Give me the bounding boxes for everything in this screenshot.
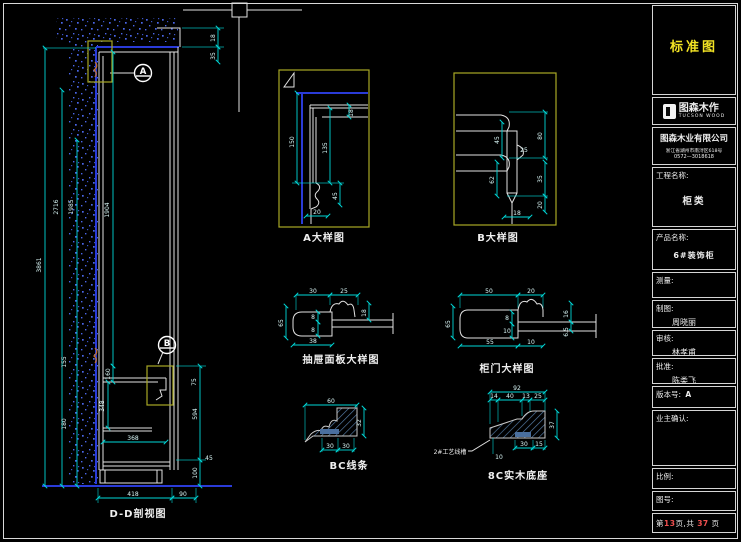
dim-label: 20 bbox=[313, 209, 321, 216]
dim-label: 55 bbox=[486, 339, 494, 346]
measure-label: 测量: bbox=[656, 275, 732, 286]
dim-label: 18 bbox=[210, 34, 217, 42]
product-label: 产品名称: bbox=[656, 232, 732, 243]
dim-label: 15 bbox=[535, 441, 543, 448]
dim-label: 3861 bbox=[36, 257, 43, 272]
base-8c-view: 2#工艺线槽 92 14 40 13 25 37 30 15 10 8C实木底座 bbox=[434, 385, 557, 482]
dim-label: 92 bbox=[513, 385, 521, 392]
review-label: 审核: bbox=[656, 333, 732, 344]
scale-cell: 比例: bbox=[652, 468, 736, 489]
page-total: 37 bbox=[697, 519, 708, 528]
callout-a-label: A bbox=[140, 67, 147, 77]
dim-label: 368 bbox=[127, 435, 139, 442]
dim-label: 45 bbox=[494, 136, 501, 144]
cad-drawing-canvas: A B bbox=[0, 0, 741, 542]
dim-label: 20 bbox=[527, 288, 535, 295]
page-prefix: 第 bbox=[656, 519, 664, 528]
dim-label: 65 bbox=[278, 319, 285, 327]
logo-cell: 图森木作 TUCSON WOOD bbox=[652, 97, 736, 125]
dim-label: 25 bbox=[534, 393, 542, 400]
dim-label: 2716 bbox=[53, 199, 60, 214]
dim-label: 30 bbox=[520, 441, 528, 448]
drawing-sheet: A B bbox=[0, 0, 741, 542]
dim-label: 16 bbox=[563, 310, 570, 318]
leader-label: 2#工艺线槽 bbox=[434, 448, 467, 456]
dim-label: 30 bbox=[342, 443, 350, 450]
dim-label: 60 bbox=[327, 398, 335, 405]
dim-label: 32 bbox=[356, 419, 363, 427]
page-suffix: 页 bbox=[712, 519, 720, 528]
concrete-speckle-top bbox=[56, 18, 178, 42]
dim-label: 6.5 bbox=[563, 327, 570, 337]
dim-label: 25 bbox=[340, 288, 348, 295]
dim-label: 75 bbox=[191, 378, 198, 386]
dim-label: 45 bbox=[332, 192, 339, 200]
dim-label: 10 bbox=[495, 454, 503, 461]
dim-label: 10 bbox=[527, 339, 535, 346]
moulding-insert-block bbox=[320, 429, 339, 434]
review-cell: 审核: 林孝甫 bbox=[652, 330, 736, 356]
dim-label: 40 bbox=[506, 393, 514, 400]
concrete-speckle-wall bbox=[68, 42, 98, 484]
dim-label: 1985 bbox=[68, 199, 75, 214]
review-value: 林孝甫 bbox=[656, 347, 732, 356]
top-grid-marker bbox=[183, 3, 302, 112]
dim-label: 30 bbox=[326, 443, 334, 450]
company-name: 图森木业有限公司 bbox=[656, 132, 732, 144]
detail-b-view: 45 80 25 62 35 20 18 B大样图 bbox=[454, 73, 556, 244]
project-cell: 工程名称: 柜类 bbox=[652, 167, 736, 227]
cabinet-door-view: 50 20 65 8 10 16 6.5 55 10 柜门大样图 bbox=[445, 288, 596, 375]
approve-cell: 批准: 陈类飞 bbox=[652, 358, 736, 384]
bc-moulding-caption: BC线条 bbox=[330, 459, 369, 472]
company-address: 浙江省湖州市南浔区618号 bbox=[658, 147, 730, 154]
detail-b-highlight-box bbox=[147, 366, 173, 405]
dim-label: 62 bbox=[489, 176, 496, 184]
project-value: 柜类 bbox=[656, 193, 732, 207]
drawing-no-cell: 图号: bbox=[652, 491, 736, 511]
product-cell: 产品名称: 6#装饰柜 bbox=[652, 229, 736, 270]
base-insert-block bbox=[515, 432, 531, 437]
bc-moulding-view: 60 32 30 30 BC线条 bbox=[305, 398, 368, 472]
drawer-panel-view: 30 25 65 8 8 18 38 抽屉面板大样图 bbox=[278, 288, 393, 366]
owner-confirm-label: 业主确认: bbox=[656, 413, 732, 424]
dim-label: 594 bbox=[192, 408, 199, 420]
title-block: 标准图 图森木作 TUCSON WOOD 图森木业有限公司 浙江省湖州市南浔区6… bbox=[652, 5, 736, 533]
dim-label: 65 bbox=[445, 320, 452, 328]
drawer-panel-caption: 抽屉面板大样图 bbox=[303, 353, 380, 366]
section-view: A B bbox=[36, 18, 232, 520]
dim-label: 150 bbox=[289, 136, 296, 148]
dim-label: 30 bbox=[309, 288, 317, 295]
draft-cell: 制图: 周晓丽 bbox=[652, 300, 736, 328]
base-8c-caption: 8C实木底座 bbox=[488, 469, 548, 482]
section-caption: D-D剖视图 bbox=[110, 507, 167, 520]
draft-label: 制图: bbox=[656, 303, 732, 314]
version-cell: 版本号: A bbox=[652, 386, 736, 408]
dim-label: 8 bbox=[311, 327, 315, 334]
scale-label: 比例: bbox=[656, 471, 732, 482]
product-value: 6#装饰柜 bbox=[656, 250, 732, 261]
dim-label: 348 bbox=[99, 400, 106, 412]
dim-label: 13 bbox=[522, 393, 530, 400]
drawing-no-label: 图号: bbox=[656, 494, 732, 505]
version-value: A bbox=[685, 390, 691, 399]
callout-b-label: B bbox=[164, 339, 170, 349]
dim-label: 14 bbox=[490, 393, 498, 400]
standard-drawing-cell: 标准图 bbox=[652, 5, 736, 95]
dim-label: 135 bbox=[322, 142, 329, 154]
company-logo-icon bbox=[663, 104, 676, 119]
company-cell: 图森木业有限公司 浙江省湖州市南浔区618号 0572—3018618 bbox=[652, 127, 736, 165]
standard-drawing-label: 标准图 bbox=[670, 40, 718, 55]
dim-label: 18 bbox=[361, 309, 368, 317]
dim-label: 100 bbox=[192, 467, 199, 479]
dim-label: 50 bbox=[485, 288, 493, 295]
page-cell: 第13页,共 37 页 bbox=[652, 513, 736, 533]
detail-b-caption: B大样图 bbox=[477, 231, 519, 244]
dim-label: 25 bbox=[520, 147, 528, 154]
dim-label: 418 bbox=[127, 491, 139, 498]
dim-label: 45 bbox=[205, 455, 213, 462]
approve-label: 批准: bbox=[656, 361, 732, 372]
dim-label: 37 bbox=[549, 421, 556, 429]
detail-a-view: 150 135 18 45 20 A大样图 bbox=[279, 70, 369, 244]
dim-label: 90 bbox=[179, 491, 187, 498]
draft-value: 周晓丽 bbox=[656, 317, 732, 328]
dim-label: 35 bbox=[537, 175, 544, 183]
measure-cell: 测量: bbox=[652, 272, 736, 298]
approve-value: 陈类飞 bbox=[656, 375, 732, 384]
dim-label: 20 bbox=[537, 201, 544, 209]
dim-label: 1904 bbox=[104, 202, 111, 217]
dim-label: 8 bbox=[311, 314, 315, 321]
company-phone: 0572—3018618 bbox=[656, 154, 732, 160]
dim-label: 35 bbox=[210, 52, 217, 60]
owner-confirm-cell: 业主确认: bbox=[652, 410, 736, 466]
page-current: 13 bbox=[664, 519, 675, 528]
dim-label: 8 bbox=[505, 315, 509, 322]
dim-label: 10 bbox=[503, 328, 511, 335]
dim-label: 155 bbox=[61, 356, 68, 368]
brand-name: 图森木作 bbox=[679, 103, 725, 114]
dim-label: 160 bbox=[105, 368, 112, 380]
version-label: 版本号: bbox=[656, 390, 681, 399]
dim-label: 180 bbox=[61, 418, 68, 430]
dim-label: 18 bbox=[348, 109, 355, 117]
detail-a-caption: A大样图 bbox=[303, 231, 345, 244]
page-middle: 页,共 bbox=[675, 519, 694, 528]
dim-label: 38 bbox=[309, 338, 317, 345]
dim-label: 18 bbox=[513, 210, 521, 217]
brand-name-en: TUCSON WOOD bbox=[679, 114, 725, 119]
dim-label: 80 bbox=[537, 132, 544, 140]
project-label: 工程名称: bbox=[656, 170, 732, 181]
cabinet-door-caption: 柜门大样图 bbox=[479, 362, 535, 375]
